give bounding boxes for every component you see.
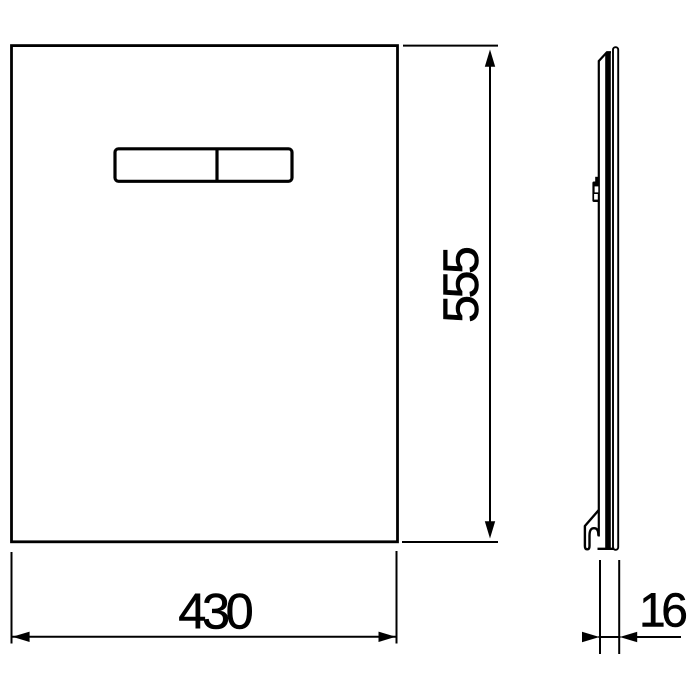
svg-text:555: 555 xyxy=(432,246,489,323)
svg-text:430: 430 xyxy=(178,583,254,640)
svg-text:16: 16 xyxy=(639,585,688,638)
